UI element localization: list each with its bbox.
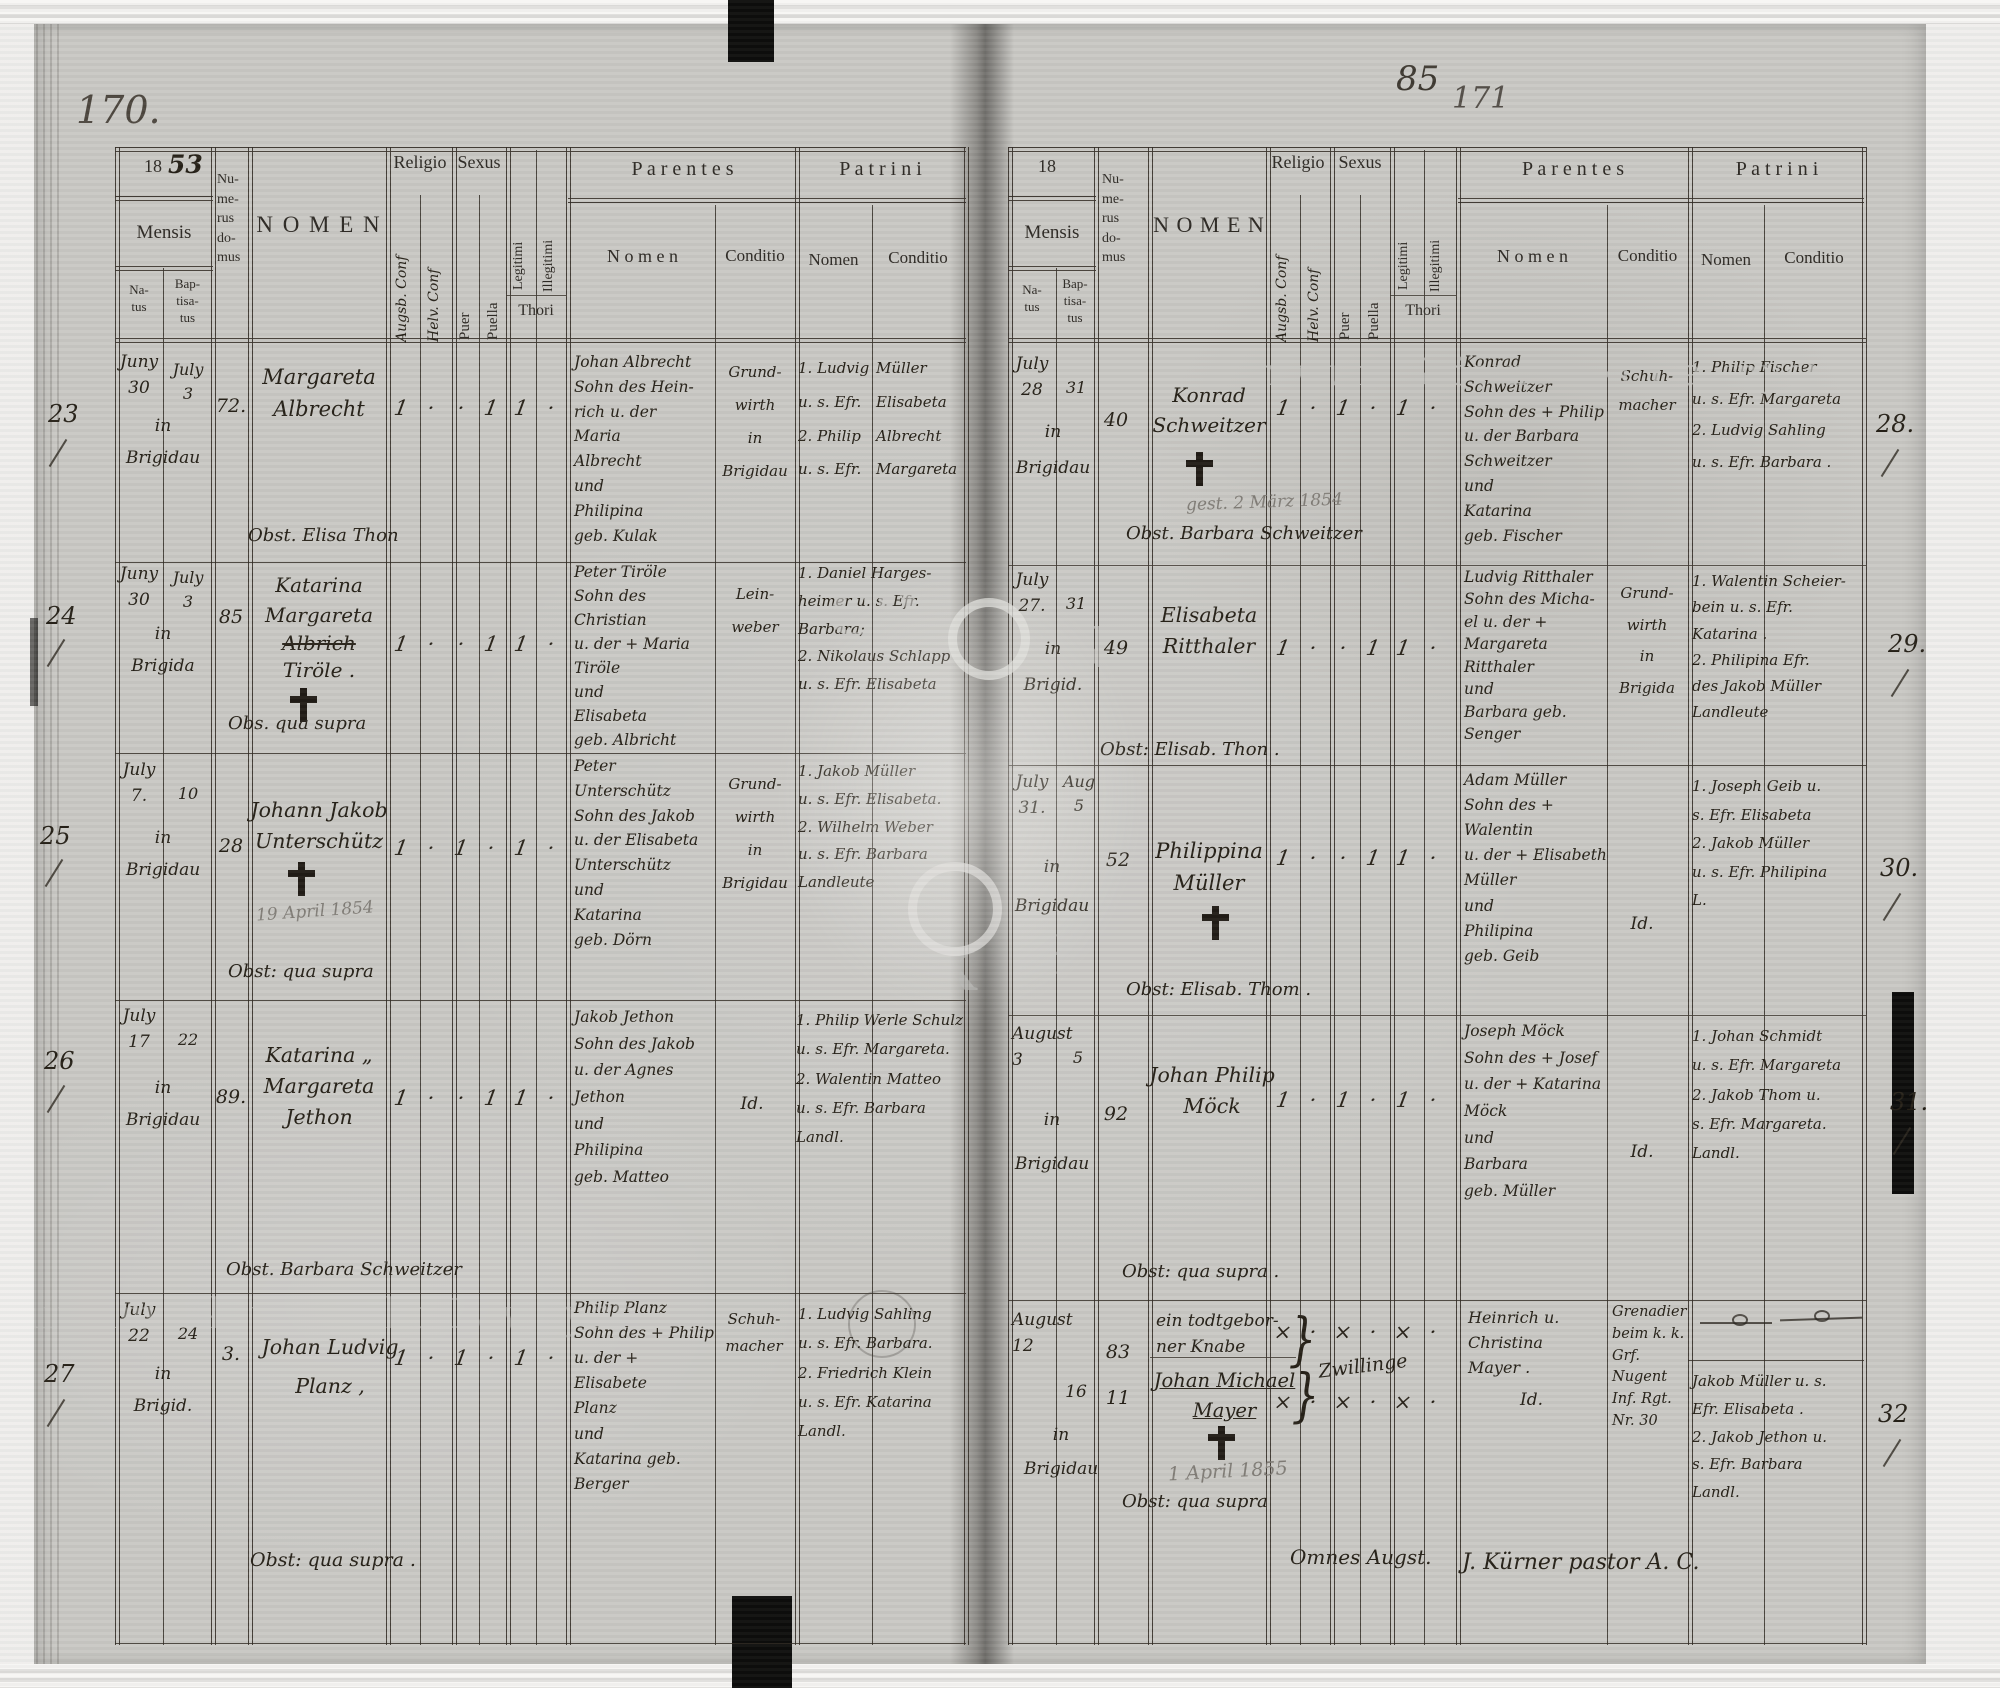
record-marks: 1·1·1· bbox=[1268, 396, 1448, 420]
death-cross bbox=[1196, 452, 1203, 486]
mark-puella: · bbox=[1356, 1390, 1390, 1414]
mark-religio-helv: · bbox=[414, 1346, 448, 1370]
baptisatus-date: July 3 bbox=[163, 358, 213, 406]
record-number: 29. bbox=[1888, 626, 1926, 662]
col-header-nomen: N O M E N bbox=[1150, 212, 1268, 238]
mark-legitimi: 1 bbox=[1386, 1088, 1420, 1112]
col-header-puella: Puella bbox=[485, 245, 502, 340]
house-number: 3. bbox=[211, 1340, 251, 1369]
natus-date: July 7. bbox=[115, 758, 163, 809]
record-marks: 1··11· bbox=[386, 632, 566, 656]
place: in Brigid. bbox=[110, 1358, 216, 1423]
mark-religio-augsb: 1 bbox=[384, 1346, 418, 1370]
place: in Brigida bbox=[110, 618, 216, 683]
mark-religio-helv: · bbox=[1296, 1088, 1330, 1112]
parentes-conditio: Grund- wirth in Brigidau bbox=[716, 768, 794, 900]
mark-puella: 1 bbox=[474, 396, 508, 420]
house-number: 72. bbox=[211, 392, 251, 421]
column-rule bbox=[1424, 150, 1425, 1645]
mark-illegitimi: · bbox=[534, 836, 568, 860]
mark-puer: 1 bbox=[444, 1346, 478, 1370]
dash-loop bbox=[1814, 1310, 1830, 1322]
place: in Brigidau bbox=[1000, 1098, 1104, 1186]
mark-religio-helv: · bbox=[1296, 846, 1330, 870]
parentes-conditio: Id. bbox=[1612, 912, 1672, 938]
patrini: 1. Philip Werle Schulz u. s. Efr. Margar… bbox=[796, 1006, 968, 1152]
record-marks: 1·1·1· bbox=[386, 1346, 566, 1370]
mark-puer: × bbox=[1326, 1390, 1360, 1414]
footer-pastor-signature: J. Kürner pastor A. C. bbox=[1462, 1546, 1822, 1579]
parentes-nomen: Heinrich u. Christina Mayer . bbox=[1468, 1306, 1608, 1380]
mark-legitimi: 1 bbox=[1386, 846, 1420, 870]
baptisatus-date: 31 bbox=[1056, 352, 1096, 400]
col-header-religio-helv: Helv. Conf bbox=[424, 200, 445, 342]
mark-puella: · bbox=[1356, 1088, 1390, 1112]
mark-religio-augsb: 1 bbox=[1266, 846, 1300, 870]
year-printed-left: 18 bbox=[144, 156, 162, 177]
patrini: 1. Jakob Müller u. s. Efr. Elisabeta. 2.… bbox=[798, 758, 968, 897]
mark-religio-helv: · bbox=[1296, 1390, 1330, 1414]
col-header-baptisatus: Bap- tisa- tus bbox=[164, 276, 211, 327]
death-cross bbox=[298, 862, 305, 896]
col-header-puer: Puer bbox=[457, 262, 474, 340]
parentes-conditio: Id. bbox=[722, 1092, 782, 1118]
record-number: 31. bbox=[1890, 1084, 1928, 1120]
record-marks: 1··11· bbox=[1268, 846, 1448, 870]
row-rule bbox=[115, 196, 213, 201]
col-header-sexus: Sexus bbox=[1330, 152, 1390, 173]
parentes-conditio: Grenadier beim k. k. Grf. Nugent Inf. Rg… bbox=[1612, 1302, 1692, 1433]
mark-religio-augsb: × bbox=[1266, 1390, 1300, 1414]
col-header-religio-augsb: Augsb. Conf bbox=[1272, 200, 1293, 342]
child-name-line2: Tiröle . bbox=[250, 655, 388, 685]
mark-puer: · bbox=[444, 396, 478, 420]
col-header-numerus-domus: Nu- me- rus do- mus bbox=[1102, 170, 1136, 268]
mark-puer: 1 bbox=[1326, 396, 1360, 420]
mark-puer: · bbox=[444, 1086, 478, 1110]
patrini: 1. Ludvig Sahling u. s. Efr. Barbara. 2.… bbox=[798, 1300, 968, 1446]
col-header-natus: Na- tus bbox=[117, 282, 161, 316]
parentes-conditio: Grund- wirth in Brigidau bbox=[716, 356, 794, 488]
row-rule bbox=[115, 1643, 966, 1644]
obstetrix-note: Obst: Elisab. Thom . bbox=[1126, 976, 1426, 1003]
child-name: Philippina Müller bbox=[1150, 836, 1268, 899]
death-cross bbox=[1218, 1426, 1225, 1460]
patrini: 1. Daniel Harges- heimer u. s. Efr. Barb… bbox=[798, 560, 968, 699]
mark-illegitimi: · bbox=[1416, 1088, 1450, 1112]
row-rule bbox=[115, 1293, 966, 1294]
col-header-parentes: P a r e n t e s bbox=[570, 158, 795, 181]
mark-legitimi: × bbox=[1386, 1320, 1420, 1344]
mark-religio-augsb: 1 bbox=[384, 396, 418, 420]
col-header-religio: Religio bbox=[388, 152, 452, 173]
house-number: 52 bbox=[1096, 846, 1140, 875]
natus-date: July 27. bbox=[1008, 568, 1056, 619]
mark-puella: · bbox=[474, 1346, 508, 1370]
mark-religio-augsb: 1 bbox=[384, 836, 418, 860]
mark-religio-helv: · bbox=[1296, 636, 1330, 660]
row-rule bbox=[1008, 565, 1866, 566]
record-marks: 1··11· bbox=[386, 1086, 566, 1110]
row-rule bbox=[1458, 198, 1864, 203]
col-header-patrini-nomen: Nomen bbox=[795, 250, 872, 270]
child-name: Margareta Albrecht bbox=[250, 362, 388, 425]
parentes-conditio: Schuh- macher bbox=[1608, 362, 1686, 419]
col-header-parentes-nomen: N o m e n bbox=[1458, 246, 1607, 267]
column-rule bbox=[1390, 147, 1395, 1645]
mark-religio-helv: · bbox=[414, 396, 448, 420]
mark-legitimi: 1 bbox=[504, 1346, 538, 1370]
column-rule bbox=[506, 147, 511, 1645]
house-number-twin-b: 11 bbox=[1098, 1384, 1138, 1413]
house-number-twin-a: 83 bbox=[1096, 1338, 1140, 1367]
mark-legitimi: 1 bbox=[1386, 396, 1420, 420]
row-rule bbox=[1390, 295, 1456, 296]
row-rule bbox=[1008, 266, 1096, 271]
mark-puer: × bbox=[1326, 1320, 1360, 1344]
row-rule bbox=[115, 753, 966, 754]
patrini-nomen: 1. Ludvig u. s. Efr. 2. Philip u. s. Efr… bbox=[798, 352, 872, 487]
col-header-sexus: Sexus bbox=[452, 152, 506, 173]
row-rule bbox=[115, 338, 966, 343]
record-marks: 1·1·1· bbox=[386, 836, 566, 860]
mark-illegitimi: · bbox=[1416, 1320, 1450, 1344]
natus-date: July 17 bbox=[115, 1004, 163, 1055]
house-number: 49 bbox=[1094, 634, 1138, 663]
col-header-baptisatus: Bap- tisa- tus bbox=[1056, 276, 1094, 327]
patrini: 1. Johan Schmidt u. s. Efr. Margareta 2.… bbox=[1692, 1022, 1864, 1168]
col-header-legitimi: Legitimi bbox=[1396, 155, 1412, 290]
mark-puella: 1 bbox=[474, 1086, 508, 1110]
mark-religio-augsb: 1 bbox=[384, 632, 418, 656]
mark-religio-helv: · bbox=[414, 632, 448, 656]
mark-religio-helv: · bbox=[1296, 396, 1330, 420]
column-rule bbox=[1456, 147, 1461, 1645]
place: in Brigidau bbox=[110, 410, 216, 475]
col-header-numerus-domus: Nu- me- rus do- mus bbox=[217, 170, 251, 268]
parentes-idem: Id. bbox=[1520, 1388, 1564, 1414]
folio-number-left: 170. bbox=[76, 82, 161, 139]
column-rule bbox=[1330, 147, 1335, 1645]
mark-puella: · bbox=[1356, 396, 1390, 420]
natus-date-twin-a: August 12 bbox=[1012, 1308, 1092, 1359]
row-rule bbox=[115, 266, 213, 271]
place: in Brigidau bbox=[1000, 848, 1104, 926]
col-header-mensis: Mensis bbox=[115, 222, 213, 244]
scanner-band-top bbox=[0, 0, 2000, 24]
mark-puella: 1 bbox=[1356, 636, 1390, 660]
obstetrix-note: Obst: qua supra . bbox=[250, 1546, 550, 1575]
obstetrix-note: Obst. Barbara Schweitzer bbox=[1126, 520, 1456, 547]
mark-illegitimi: · bbox=[1416, 636, 1450, 660]
column-rule bbox=[452, 147, 457, 1645]
house-number: 85 bbox=[211, 603, 251, 632]
natus-date: July 31. bbox=[1008, 770, 1056, 821]
baptisatus-date: 31 bbox=[1056, 568, 1096, 616]
mark-puella: · bbox=[1356, 1320, 1390, 1344]
baptisatus-date: 24 bbox=[163, 1298, 213, 1346]
death-cross bbox=[1212, 906, 1219, 940]
record-marks-twin-b: ×·×·×· bbox=[1268, 1390, 1448, 1414]
row-rule bbox=[1008, 1643, 1866, 1644]
record-number: 27 bbox=[44, 1356, 75, 1392]
patrini: Jakob Müller u. s. Efr. Elisabeta . 2. J… bbox=[1692, 1368, 1864, 1507]
mark-illegitimi: · bbox=[1416, 396, 1450, 420]
dash-loop bbox=[1732, 1314, 1748, 1326]
mark-illegitimi: · bbox=[534, 632, 568, 656]
col-header-patrini-nomen: Nomen bbox=[1688, 250, 1764, 270]
natus-date: July 22 bbox=[115, 1298, 163, 1349]
mark-religio-augsb: 1 bbox=[1266, 1088, 1300, 1112]
mark-puer: 1 bbox=[444, 836, 478, 860]
record-number: 30. bbox=[1880, 850, 1918, 886]
patrini-conditio: Müller Elisabeta Albrecht Margareta bbox=[876, 352, 966, 487]
col-header-parentes-conditio: Conditio bbox=[715, 246, 795, 266]
baptisatus-date: July 3 bbox=[163, 566, 213, 614]
parentes-nomen: Jakob Jethon Sohn des Jakob u. der Agnes… bbox=[574, 1004, 716, 1191]
obstetrix-note: Obst: qua supra . bbox=[1122, 1258, 1422, 1285]
col-header-religio: Religio bbox=[1266, 152, 1330, 173]
mark-religio-augsb: 1 bbox=[1266, 396, 1300, 420]
col-header-mensis: Mensis bbox=[1008, 222, 1096, 244]
row-rule bbox=[1008, 1300, 1866, 1301]
parentes-nomen: Joseph Möck Sohn des + Josef u. der + Ka… bbox=[1464, 1018, 1612, 1205]
parentes-nomen: Adam Müller Sohn des + Walentin u. der +… bbox=[1464, 768, 1612, 969]
mark-illegitimi: · bbox=[534, 1086, 568, 1110]
col-header-thori: Thori bbox=[506, 302, 566, 320]
place: in Brigid. bbox=[1002, 632, 1104, 703]
row-rule bbox=[1008, 338, 1866, 343]
patrini: 1. Philip Fischer u. s. Efr. Margareta 2… bbox=[1692, 352, 1864, 478]
parentes-nomen: Konrad Schweitzer Sohn des + Philip u. d… bbox=[1464, 350, 1606, 548]
baptisatus-date: Aug 5 bbox=[1056, 770, 1102, 818]
child-name: Johan Philip Möck bbox=[1148, 1060, 1276, 1122]
record-number: 23 bbox=[48, 396, 79, 432]
baptisatus-date-twin-b: 16 bbox=[1058, 1380, 1094, 1406]
record-marks: 1··11· bbox=[1268, 636, 1448, 660]
col-header-parentes-nomen: N o m e n bbox=[570, 246, 715, 267]
mark-legitimi: 1 bbox=[504, 1086, 538, 1110]
mark-puella: 1 bbox=[474, 632, 508, 656]
register-scan: 170. 85 171 18 53 Mensis Na- tus Bap- ti… bbox=[0, 0, 2000, 1688]
col-header-parentes: P a r e n t e s bbox=[1458, 158, 1688, 181]
col-header-illegitimi: Illegitimi bbox=[1428, 150, 1444, 292]
place: in Brigidau bbox=[110, 822, 216, 887]
record-marks: 1··11· bbox=[386, 396, 566, 420]
obstetrix-note: Obst. Elisa Thon bbox=[248, 522, 548, 549]
mark-legitimi: 1 bbox=[504, 632, 538, 656]
natus-date: Juny 30 bbox=[115, 350, 163, 401]
mark-illegitimi: · bbox=[1416, 1390, 1450, 1414]
patrini: 1. Walentin Scheier- bein u. s. Efr. Kat… bbox=[1692, 568, 1864, 726]
mark-puer: · bbox=[1326, 636, 1360, 660]
parentes-conditio: Grund- wirth in Brigida bbox=[1608, 578, 1686, 704]
record-number: 25 bbox=[40, 818, 71, 854]
parentes-nomen: Ludvig Ritthaler Sohn des Micha- el u. d… bbox=[1464, 566, 1606, 746]
scanner-band-bottom bbox=[0, 1664, 2000, 1688]
col-header-patrini: P a t r i n i bbox=[795, 158, 966, 181]
col-header-illegitimi: Illegitimi bbox=[541, 150, 557, 292]
obstetrix-note: Obst: Elisab. Thon . bbox=[1100, 736, 1400, 763]
mark-legitimi: × bbox=[1386, 1390, 1420, 1414]
binding-clip-top bbox=[728, 0, 774, 62]
mark-religio-augsb: 1 bbox=[1266, 636, 1300, 660]
column-rule bbox=[566, 147, 571, 1645]
footer-omnes: Omnes Augst. bbox=[1290, 1542, 1470, 1572]
mark-religio-helv: · bbox=[414, 1086, 448, 1110]
baptisatus-date: 22 bbox=[163, 1004, 213, 1052]
row-rule bbox=[1688, 1360, 1864, 1361]
folio-number-right-ink: 85 bbox=[1396, 54, 1439, 105]
col-header-parentes-conditio: Conditio bbox=[1607, 246, 1688, 266]
col-header-natus: Na- tus bbox=[1010, 282, 1054, 316]
mark-puella: · bbox=[474, 836, 508, 860]
baptisatus-date: 5 bbox=[1058, 1022, 1098, 1070]
house-number: 89. bbox=[211, 1083, 251, 1112]
parentes-conditio: Lein- weber bbox=[716, 578, 794, 644]
natus-date: July 28 bbox=[1008, 352, 1056, 403]
child-name: Katarina Margareta bbox=[250, 570, 388, 630]
column-rule bbox=[536, 150, 537, 1645]
child-name: Katarina „ Margareta Jethon bbox=[250, 1040, 388, 1132]
year-hand-left: 53 bbox=[168, 146, 203, 184]
mark-legitimi: 1 bbox=[1386, 636, 1420, 660]
mark-puer: 1 bbox=[1326, 1088, 1360, 1112]
mark-puer: · bbox=[444, 632, 478, 656]
obstetrix-note: Obst. Barbara Schweitzer bbox=[226, 1256, 556, 1283]
house-number: 40 bbox=[1094, 406, 1138, 435]
folio-number-right-pencil: 171 bbox=[1452, 76, 1509, 121]
parentes-nomen: Philip Planz Sohn des + Philip u. der + … bbox=[574, 1296, 716, 1497]
row-rule bbox=[1008, 765, 1866, 766]
mark-religio-augsb: 1 bbox=[384, 1086, 418, 1110]
child-name-struck: Albrich bbox=[250, 628, 388, 658]
obstetrix-note: Obs. qua supra bbox=[228, 710, 508, 737]
col-header-patrini: P a t r i n i bbox=[1688, 158, 1866, 181]
record-number: 32 bbox=[1878, 1396, 1909, 1432]
child-name: Johann Jakob Unterschütz bbox=[250, 795, 388, 857]
place: in Brigidau bbox=[1006, 1418, 1116, 1486]
row-rule bbox=[568, 198, 966, 203]
binding-clip-bottom bbox=[732, 1596, 792, 1688]
parentes-nomen: Johan Albrecht Sohn des Hein- rich u. de… bbox=[574, 350, 714, 548]
mark-illegitimi: · bbox=[534, 396, 568, 420]
col-header-patrini-conditio: Conditio bbox=[1764, 248, 1864, 268]
record-number: 28. bbox=[1876, 406, 1914, 442]
col-header-puer: Puer bbox=[1337, 262, 1354, 340]
col-header-nomen: N O M E N bbox=[250, 212, 388, 238]
record-number: 26 bbox=[44, 1043, 75, 1079]
parentes-conditio: Schuh- macher bbox=[714, 1306, 794, 1360]
natus-date: Juny 30 bbox=[115, 562, 163, 613]
year-printed-right: 18 bbox=[1038, 156, 1056, 177]
record-marks: 1·1·1· bbox=[1268, 1088, 1448, 1112]
child-name: Elisabeta Ritthaler bbox=[1150, 600, 1268, 662]
child-name: Konrad Schweitzer bbox=[1150, 380, 1268, 440]
col-header-legitimi: Legitimi bbox=[511, 155, 527, 290]
mark-religio-helv: · bbox=[414, 836, 448, 860]
parentes-conditio: Id. bbox=[1612, 1140, 1672, 1166]
record-number: 24 bbox=[46, 598, 77, 634]
baptisatus-date: 10 bbox=[163, 758, 213, 806]
place: in Brigidau bbox=[1002, 415, 1104, 486]
place: in Brigidau bbox=[110, 1072, 216, 1137]
house-number: 92 bbox=[1094, 1100, 1138, 1129]
mark-puer: · bbox=[1326, 846, 1360, 870]
row-rule bbox=[506, 295, 566, 296]
patrini: 1. Joseph Geib u. s. Efr. Elisabeta 2. J… bbox=[1692, 772, 1864, 915]
col-header-patrini-conditio: Conditio bbox=[872, 248, 964, 268]
edge-shadow-mark bbox=[30, 618, 38, 706]
obstetrix-note: Obst: qua supra bbox=[228, 958, 508, 985]
col-header-thori: Thori bbox=[1390, 302, 1456, 320]
mark-puella: 1 bbox=[1356, 846, 1390, 870]
parentes-nomen: Peter Tiröle Sohn des Christian u. der +… bbox=[574, 560, 716, 752]
col-header-religio-augsb: Augsb. Conf bbox=[392, 200, 413, 342]
row-rule bbox=[1008, 1015, 1866, 1016]
mark-legitimi: 1 bbox=[504, 396, 538, 420]
col-header-religio-helv: Helv. Conf bbox=[1304, 200, 1325, 342]
row-rule bbox=[115, 1000, 966, 1001]
obstetrix-note: Obst: qua supra bbox=[1122, 1488, 1422, 1515]
parentes-nomen: Peter Unterschütz Sohn des Jakob u. der … bbox=[574, 754, 716, 952]
row-rule bbox=[1008, 196, 1096, 201]
mark-illegitimi: · bbox=[1416, 846, 1450, 870]
house-number: 28 bbox=[211, 832, 251, 861]
col-header-puella: Puella bbox=[1366, 245, 1383, 340]
mark-illegitimi: · bbox=[534, 1346, 568, 1370]
mark-legitimi: 1 bbox=[504, 836, 538, 860]
